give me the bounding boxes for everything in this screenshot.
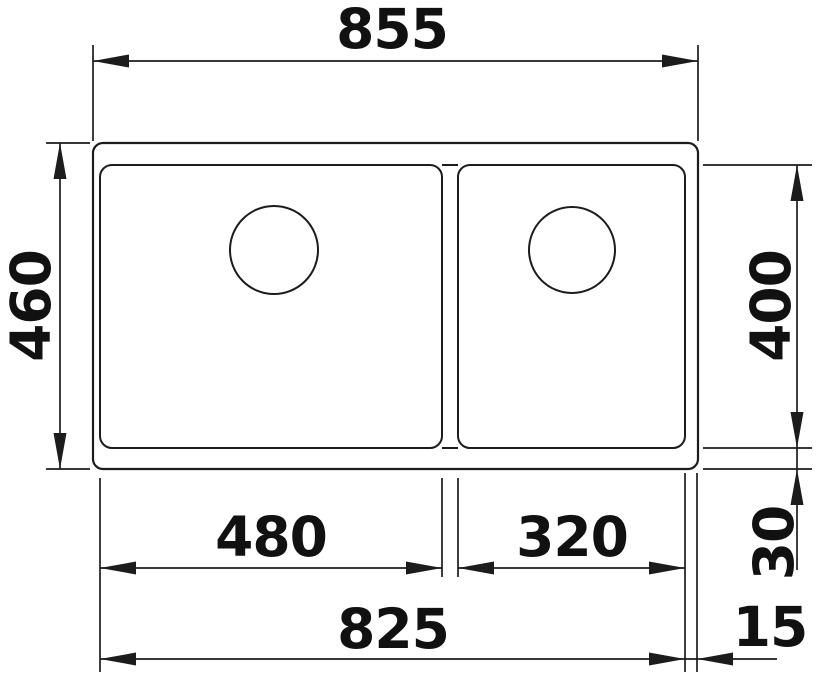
arrowhead-left: [100, 562, 136, 575]
arrowhead-up: [54, 143, 67, 179]
right-drain-hole: [529, 207, 615, 293]
dimension-label-480: 480: [215, 505, 327, 569]
dimension-label-30: 30: [742, 506, 806, 581]
arrowhead-right: [662, 55, 698, 68]
dimension-bowl-depth: 400 30: [703, 165, 812, 580]
arrowhead-left: [458, 562, 494, 575]
arrowhead-up: [791, 469, 804, 505]
dimension-label-825: 825: [337, 597, 449, 661]
arrowhead-left: [100, 653, 136, 666]
arrowhead-up: [791, 165, 804, 201]
sink-body: [93, 143, 698, 469]
dimension-label-400: 400: [739, 250, 803, 362]
dimension-overall-depth: 460: [0, 143, 90, 469]
arrowhead-down: [54, 433, 67, 469]
arrowhead-left: [93, 55, 129, 68]
sink-outer-rim: [93, 143, 698, 469]
arrowhead-right: [649, 653, 685, 666]
left-drain-hole: [230, 206, 318, 294]
arrowhead-down: [791, 412, 804, 448]
drawing-svg: 855 460 400 30: [0, 0, 820, 682]
left-bowl-outline: [100, 165, 442, 448]
sink-technical-drawing: 855 460 400 30: [0, 0, 820, 682]
arrowhead-right: [406, 562, 442, 575]
dimension-label-15: 15: [733, 595, 808, 659]
dimension-bowl-widths: 480 320: [100, 478, 685, 577]
dimension-overall-width: 855: [93, 0, 698, 141]
dimension-label-460: 460: [0, 250, 63, 362]
dimension-cutout-width: 825 15: [100, 473, 807, 672]
dimension-label-855: 855: [336, 0, 448, 61]
arrowhead-left: [697, 653, 733, 666]
dimension-label-320: 320: [516, 505, 628, 569]
arrowhead-right: [649, 562, 685, 575]
